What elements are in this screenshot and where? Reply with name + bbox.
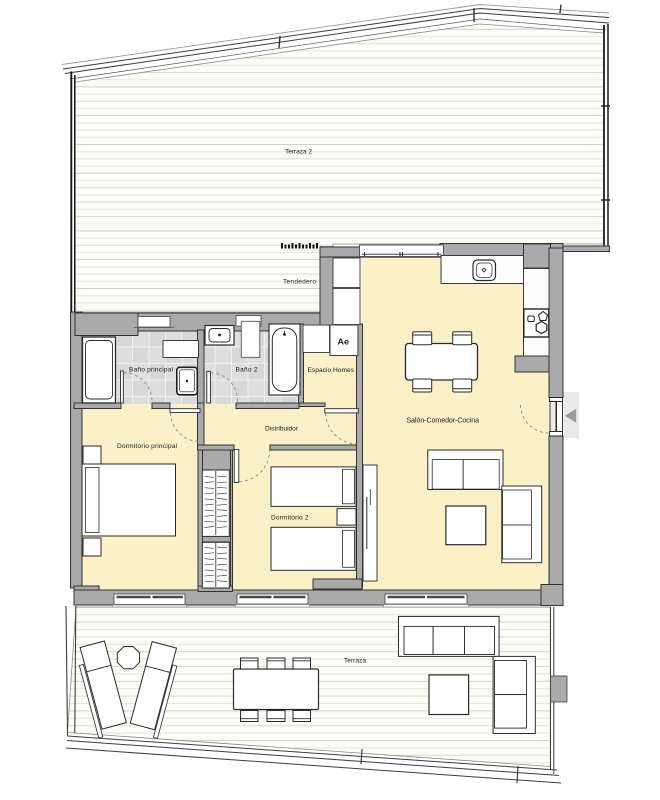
svg-text:Dormitorio principal: Dormitorio principal (117, 443, 178, 450)
svg-text:Baño principal: Baño principal (129, 367, 174, 374)
svg-text:Dormitorio 2: Dormitorio 2 (271, 515, 309, 522)
svg-text:Tendedero: Tendedero (283, 279, 316, 286)
svg-text:Terraza: Terraza (344, 658, 366, 665)
svg-text:Ae: Ae (338, 337, 350, 347)
svg-text:Terraza 2: Terraza 2 (285, 149, 312, 156)
svg-text:Espacio Homes: Espacio Homes (308, 367, 355, 374)
svg-text:Distribuidor: Distribuidor (265, 426, 299, 433)
svg-text:Salón-Comedor-Cocina: Salón-Comedor-Cocina (407, 418, 480, 425)
svg-text:Baño 2: Baño 2 (236, 366, 258, 373)
